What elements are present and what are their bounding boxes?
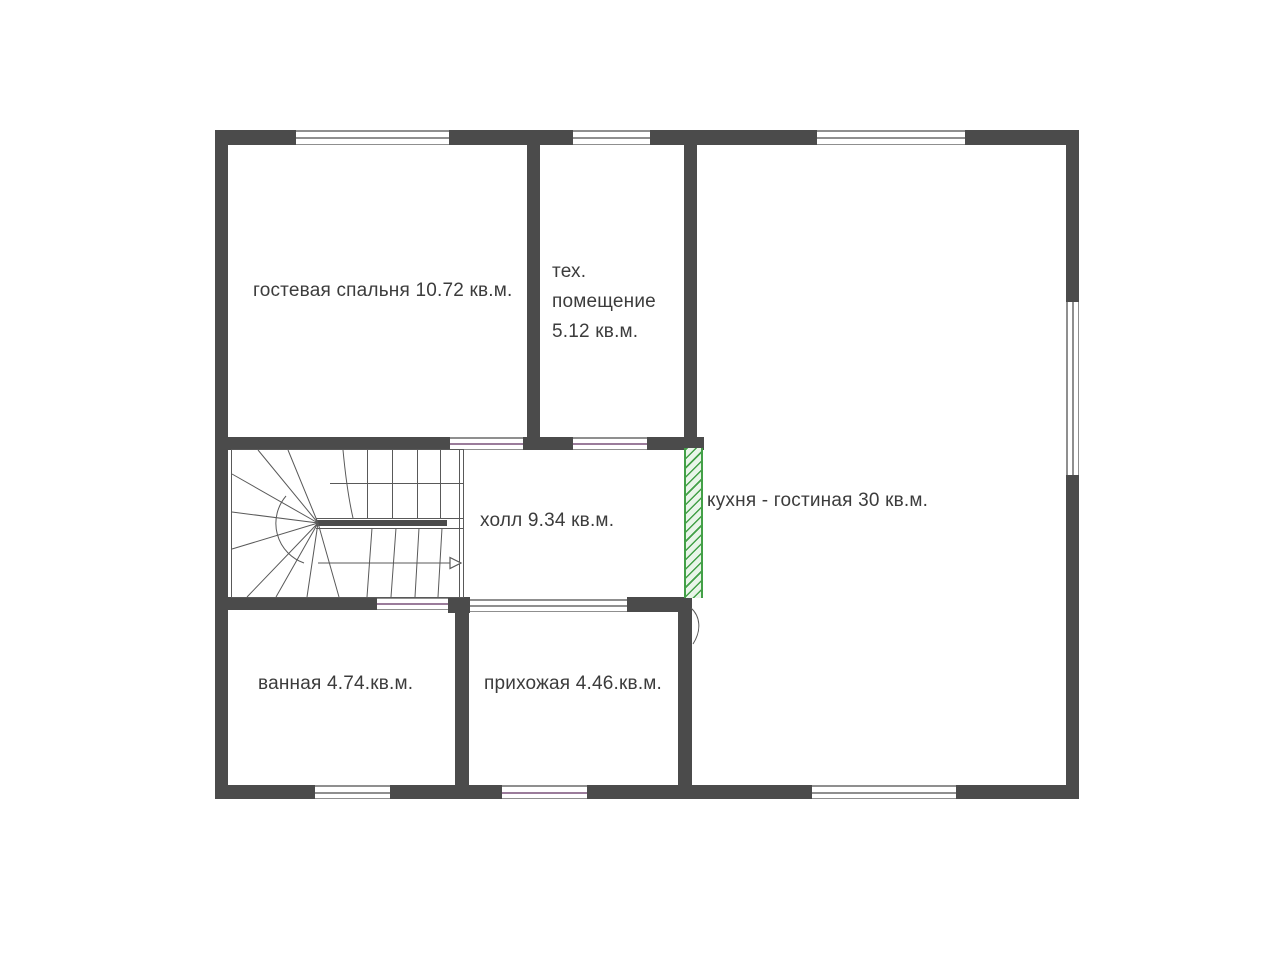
opening-hall-entry [470, 599, 627, 612]
stair-railing [316, 520, 447, 526]
window-kitchen-right [1066, 302, 1079, 475]
wall-outer-right-segment-2 [1066, 475, 1079, 799]
window-kitchen-bottom [812, 785, 956, 799]
wall-outer-top-segment-2 [449, 130, 573, 145]
window-tech-room-top [573, 130, 650, 145]
room-label-bathroom: ванная 4.74.кв.м. [258, 673, 413, 695]
room-label-hall: холл 9.34 кв.м. [480, 510, 614, 532]
room-label-entry-hall: прихожая 4.46.кв.м. [484, 673, 662, 695]
wall-outer-bottom-segment-4 [956, 785, 1079, 799]
wall-outer-right-segment-1 [1066, 130, 1079, 302]
entry-door-bottom [502, 785, 587, 799]
wall-outer-top-segment-3 [650, 130, 817, 145]
opening-tech-room-hall [573, 437, 647, 450]
wall-bathroom-entry [455, 597, 469, 799]
room-label-guest-bedroom: гостевая спальня 10.72 кв.м. [253, 280, 513, 302]
wall-outer-bottom-segment-1 [215, 785, 315, 799]
wall-bedroom-tech [527, 130, 540, 450]
stair-upper-treads [330, 450, 463, 518]
window-bedroom-top [296, 130, 449, 145]
wall-outer-left [215, 130, 228, 799]
entry-kitchen-door-swing [688, 606, 706, 650]
room-label-tech-room-line2: помещение [552, 287, 656, 317]
wall-outer-top-segment-4 [965, 130, 1079, 145]
wall-tech-kitchen [684, 130, 697, 448]
kitchen-hall-hatched-partition [684, 448, 703, 598]
room-label-tech-room-line1: тех. [552, 257, 656, 287]
room-label-tech-room-line3: 5.12 кв.м. [552, 317, 656, 347]
floor-plan: гостевая спальня 10.72 кв.м. тех. помеще… [0, 0, 1280, 960]
room-label-tech-room: тех. помещение 5.12 кв.м. [552, 257, 656, 347]
window-bathroom-bottom [315, 785, 390, 799]
wall-outer-bottom-segment-2 [390, 785, 502, 799]
room-label-kitchen-living: кухня - гостиная 30 кв.м. [707, 490, 928, 512]
wall-outer-bottom-segment-3 [587, 785, 812, 799]
window-kitchen-top [817, 130, 965, 145]
staircase [228, 443, 473, 605]
